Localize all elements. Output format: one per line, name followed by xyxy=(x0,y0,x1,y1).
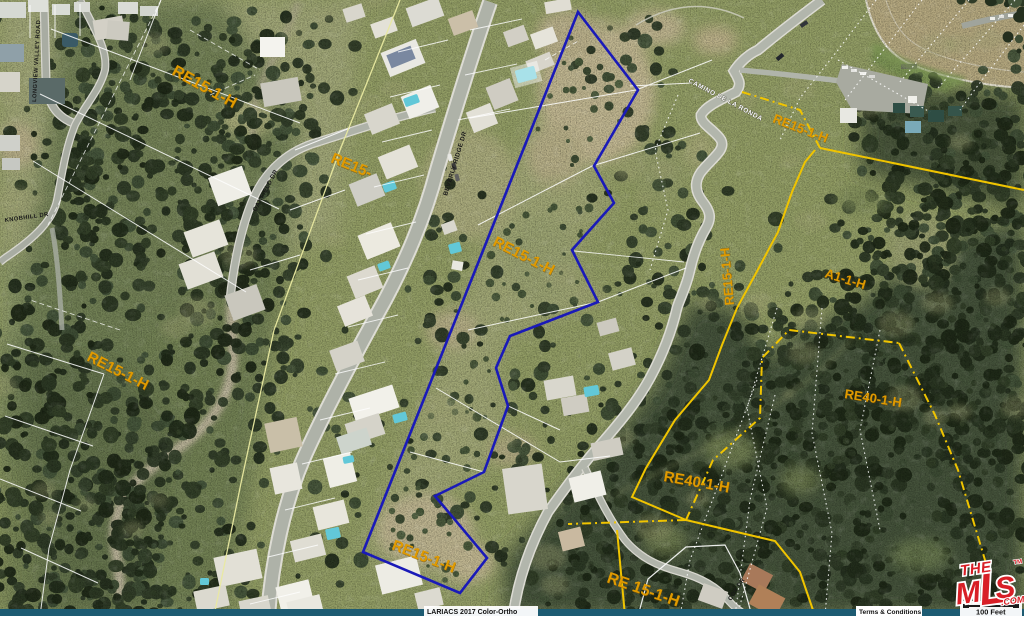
svg-text:Terms & Conditions: Terms & Conditions xyxy=(859,609,921,616)
svg-text:LARIACS 2017 Color-Ortho: LARIACS 2017 Color-Ortho xyxy=(427,609,517,616)
svg-text:TM: TM xyxy=(1013,559,1022,566)
